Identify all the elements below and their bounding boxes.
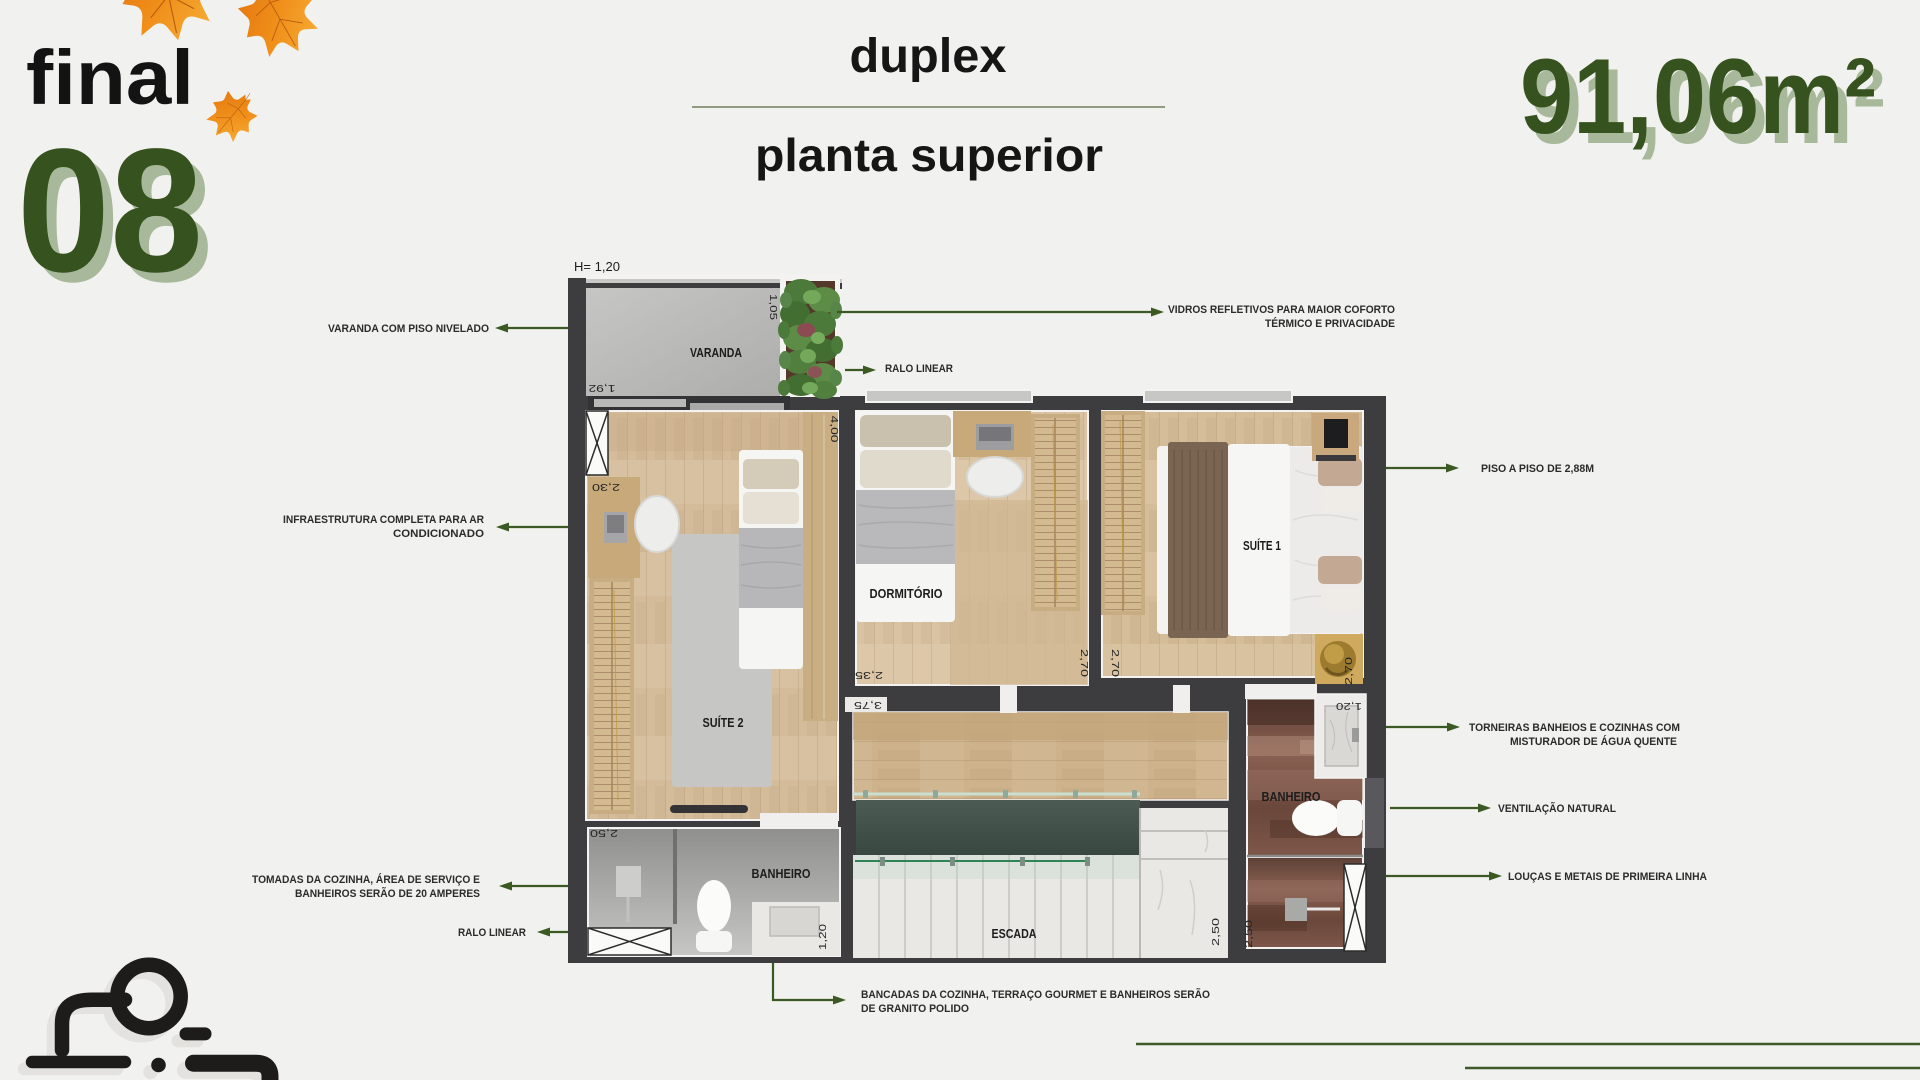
svg-text:H= 1,20: H= 1,20 [574, 260, 620, 274]
svg-text:duplex: duplex [850, 30, 1007, 83]
svg-text:2,35: 2,35 [855, 669, 883, 681]
svg-text:RALO LINEAR: RALO LINEAR [885, 363, 953, 375]
svg-text:PISO A PISO DE 2,88M: PISO A PISO DE 2,88M [1481, 463, 1594, 475]
svg-text:DE GRANITO POLIDO: DE GRANITO POLIDO [861, 1003, 969, 1015]
svg-text:1,05: 1,05 [767, 294, 779, 320]
svg-text:VIDROS REFLETIVOS PARA MAIOR C: VIDROS REFLETIVOS PARA MAIOR COFORTO [1168, 304, 1395, 316]
svg-text:2,70: 2,70 [1343, 657, 1355, 685]
svg-text:1,20: 1,20 [1336, 700, 1362, 712]
svg-text:2,70: 2,70 [1109, 649, 1121, 677]
svg-text:VARANDA COM PISO NIVELADO: VARANDA COM PISO NIVELADO [328, 323, 489, 335]
svg-text:planta superior: planta superior [755, 129, 1103, 181]
svg-text:3,75: 3,75 [854, 699, 882, 711]
svg-text:08: 08 [17, 113, 203, 309]
svg-text:CONDICIONADO: CONDICIONADO [393, 528, 484, 540]
svg-text:VENTILAÇÃO NATURAL: VENTILAÇÃO NATURAL [1498, 802, 1616, 815]
svg-text:SUÍTE 2: SUÍTE 2 [703, 715, 744, 730]
svg-text:2,70: 2,70 [1078, 649, 1090, 677]
svg-text:final: final [26, 35, 194, 121]
svg-text:SUÍTE 1: SUÍTE 1 [1243, 538, 1281, 553]
svg-text:DORMITÓRIO: DORMITÓRIO [870, 586, 943, 601]
svg-text:1,20: 1,20 [817, 924, 829, 950]
svg-text:BANCADAS DA COZINHA, TERRAÇO G: BANCADAS DA COZINHA, TERRAÇO GOURMET E B… [861, 988, 1210, 1001]
svg-text:4,00: 4,00 [828, 416, 840, 443]
svg-text:INFRAESTRUTURA COMPLETA PARA A: INFRAESTRUTURA COMPLETA PARA AR [283, 514, 484, 526]
svg-text:91,06m²: 91,06m² [1520, 36, 1876, 156]
svg-text:TOMADAS DA COZINHA, ÁREA DE SE: TOMADAS DA COZINHA, ÁREA DE SERVIÇO E [252, 873, 480, 886]
svg-text:BANHEIROS SERÃO DE 20 AMPERES: BANHEIROS SERÃO DE 20 AMPERES [295, 887, 480, 900]
svg-text:2,50: 2,50 [1243, 920, 1255, 948]
svg-text:TÉRMICO E PRIVACIDADE: TÉRMICO E PRIVACIDADE [1265, 317, 1395, 330]
svg-text:2,50: 2,50 [1210, 918, 1222, 946]
svg-text:2,30: 2,30 [592, 481, 620, 493]
svg-text:BANHEIRO: BANHEIRO [1262, 790, 1321, 804]
svg-text:BANHEIRO: BANHEIRO [752, 867, 811, 881]
svg-text:2,50: 2,50 [590, 827, 618, 839]
svg-text:RALO LINEAR: RALO LINEAR [458, 927, 526, 939]
svg-text:TORNEIRAS BANHEIOS E COZINHAS: TORNEIRAS BANHEIOS E COZINHAS COM [1469, 722, 1680, 734]
svg-text:VARANDA: VARANDA [690, 346, 742, 360]
svg-text:MISTURADOR DE ÁGUA QUENTE: MISTURADOR DE ÁGUA QUENTE [1510, 735, 1677, 748]
svg-text:ESCADA: ESCADA [992, 927, 1037, 941]
svg-text:LOUÇAS E METAIS DE PRIMEIRA LI: LOUÇAS E METAIS DE PRIMEIRA LINHA [1508, 871, 1707, 883]
svg-text:1,92: 1,92 [588, 382, 615, 394]
